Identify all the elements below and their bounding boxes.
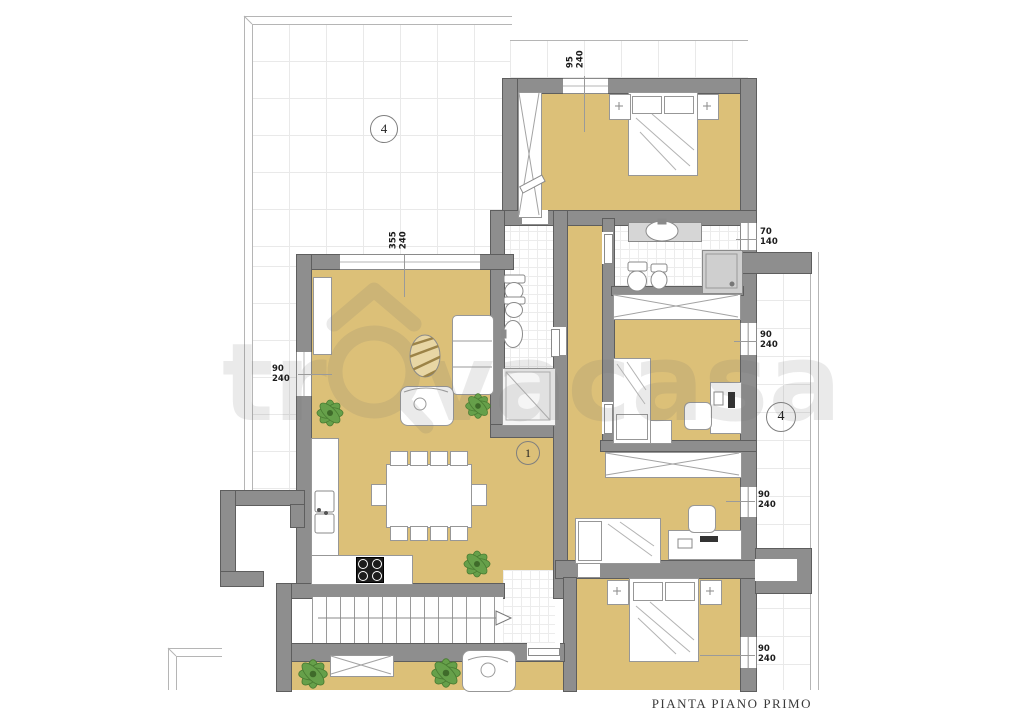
terrace-upper-band	[510, 40, 748, 78]
dim-height: 240	[272, 374, 290, 384]
dining-table	[386, 464, 472, 528]
plan-title: PIANTA PIANO PRIMO	[636, 696, 812, 712]
chair	[450, 451, 468, 466]
dim-height: 240	[576, 50, 586, 68]
dim-width: 90	[758, 644, 776, 654]
door-leaf	[604, 234, 613, 264]
dim-width: 90	[758, 490, 776, 500]
pillow	[632, 96, 662, 114]
parapet-line	[244, 16, 512, 17]
nightstand	[697, 94, 719, 120]
parapet-line	[252, 24, 512, 25]
shower	[702, 250, 743, 294]
stair-landing	[503, 570, 555, 643]
dimension-leader	[298, 374, 332, 375]
parapet-line	[810, 258, 811, 690]
tv-sideboard	[313, 277, 332, 355]
window-living-top	[340, 254, 480, 270]
stove	[356, 557, 384, 583]
dim-height: 240	[760, 340, 778, 350]
chair	[371, 484, 387, 506]
wall	[290, 504, 305, 528]
balcony-wall	[740, 252, 812, 274]
dimension-label-bedroom4-window: 90 240	[758, 644, 776, 664]
wall	[296, 254, 312, 599]
wall	[276, 643, 565, 662]
dimension-label-bedroom3-window: 90 240	[758, 490, 776, 510]
chair	[471, 484, 487, 506]
dimension-leader	[736, 239, 757, 240]
wardrobe	[518, 92, 542, 218]
parapet-line	[818, 252, 819, 690]
window-bedroom4	[740, 637, 757, 668]
window-bedroom1	[563, 78, 608, 94]
hallway-floor	[566, 222, 602, 478]
pillow	[616, 414, 648, 440]
window-bedroom2	[740, 323, 757, 355]
vanity	[628, 222, 702, 242]
chair	[410, 526, 428, 541]
staircase	[312, 597, 503, 643]
dimension-label-bedroom1-window: 95 240	[566, 50, 586, 68]
chair	[410, 451, 428, 466]
wall	[220, 571, 264, 587]
window-bathroom1	[740, 223, 757, 250]
desk-chair	[688, 505, 716, 533]
pillow	[633, 582, 663, 601]
wall	[563, 577, 577, 692]
dim-width: 355	[389, 231, 399, 249]
sofa	[452, 315, 494, 395]
door-leaf	[528, 648, 560, 656]
chair	[430, 451, 448, 466]
armchair	[400, 386, 454, 426]
nightstand	[700, 580, 722, 605]
dim-width: 95	[566, 50, 576, 68]
desk	[668, 530, 742, 560]
wall	[740, 78, 757, 692]
dimension-leader	[726, 501, 755, 502]
coffee-table	[330, 655, 394, 677]
armchair	[462, 650, 516, 692]
dimension-label-living-top-window: 355 240	[389, 231, 409, 249]
dimension-leader	[404, 255, 405, 297]
dimension-leader	[700, 655, 755, 656]
room-marker-balcony: 4	[766, 402, 796, 432]
dim-height: 140	[760, 237, 778, 247]
desk-chair	[684, 402, 712, 430]
terrace-upper	[252, 24, 510, 266]
dimension-label-bedroom2-window: 90 240	[760, 330, 778, 350]
door-leaf	[604, 404, 613, 434]
nightstand	[650, 420, 672, 444]
dim-height: 240	[758, 654, 776, 664]
dimension-leader	[584, 76, 585, 132]
nightstand	[609, 94, 631, 120]
pillow	[664, 96, 694, 114]
room-marker-terrace: 4	[370, 115, 398, 143]
dim-width: 90	[272, 364, 290, 374]
dim-width: 70	[760, 227, 778, 237]
terrace-edge-line	[510, 40, 748, 41]
parapet-line	[176, 656, 177, 690]
dim-height: 240	[399, 231, 409, 249]
wall	[276, 583, 292, 692]
dimension-label-bathroom1-window: 70 140	[760, 227, 778, 247]
floor-plan: tr vacasa	[0, 0, 1024, 723]
nightstand	[607, 580, 629, 605]
parapet-line	[252, 24, 253, 492]
chair	[430, 526, 448, 541]
room-marker-living: 1	[516, 441, 540, 465]
window-bedroom3	[740, 487, 757, 517]
wall	[502, 78, 518, 220]
parapet-line	[244, 16, 245, 492]
chair	[450, 526, 468, 541]
pillow	[665, 582, 695, 601]
dim-height: 240	[758, 500, 776, 510]
shower	[502, 368, 556, 426]
parapet-miter	[168, 16, 252, 656]
chair	[390, 526, 408, 541]
dimension-leader	[734, 341, 757, 342]
chair	[390, 451, 408, 466]
dimension-label-living-left-window: 90 240	[272, 364, 290, 384]
balcony-divider-gap	[755, 559, 797, 581]
parapet-line	[168, 648, 169, 690]
kitchen-counter	[311, 438, 339, 560]
pillow	[578, 521, 602, 561]
wardrobe	[613, 294, 741, 320]
parapet-line	[176, 656, 222, 657]
desk	[710, 382, 742, 434]
wardrobe	[605, 452, 742, 478]
door-leaf	[551, 329, 560, 357]
dim-width: 90	[760, 330, 778, 340]
parapet-line	[168, 648, 222, 649]
